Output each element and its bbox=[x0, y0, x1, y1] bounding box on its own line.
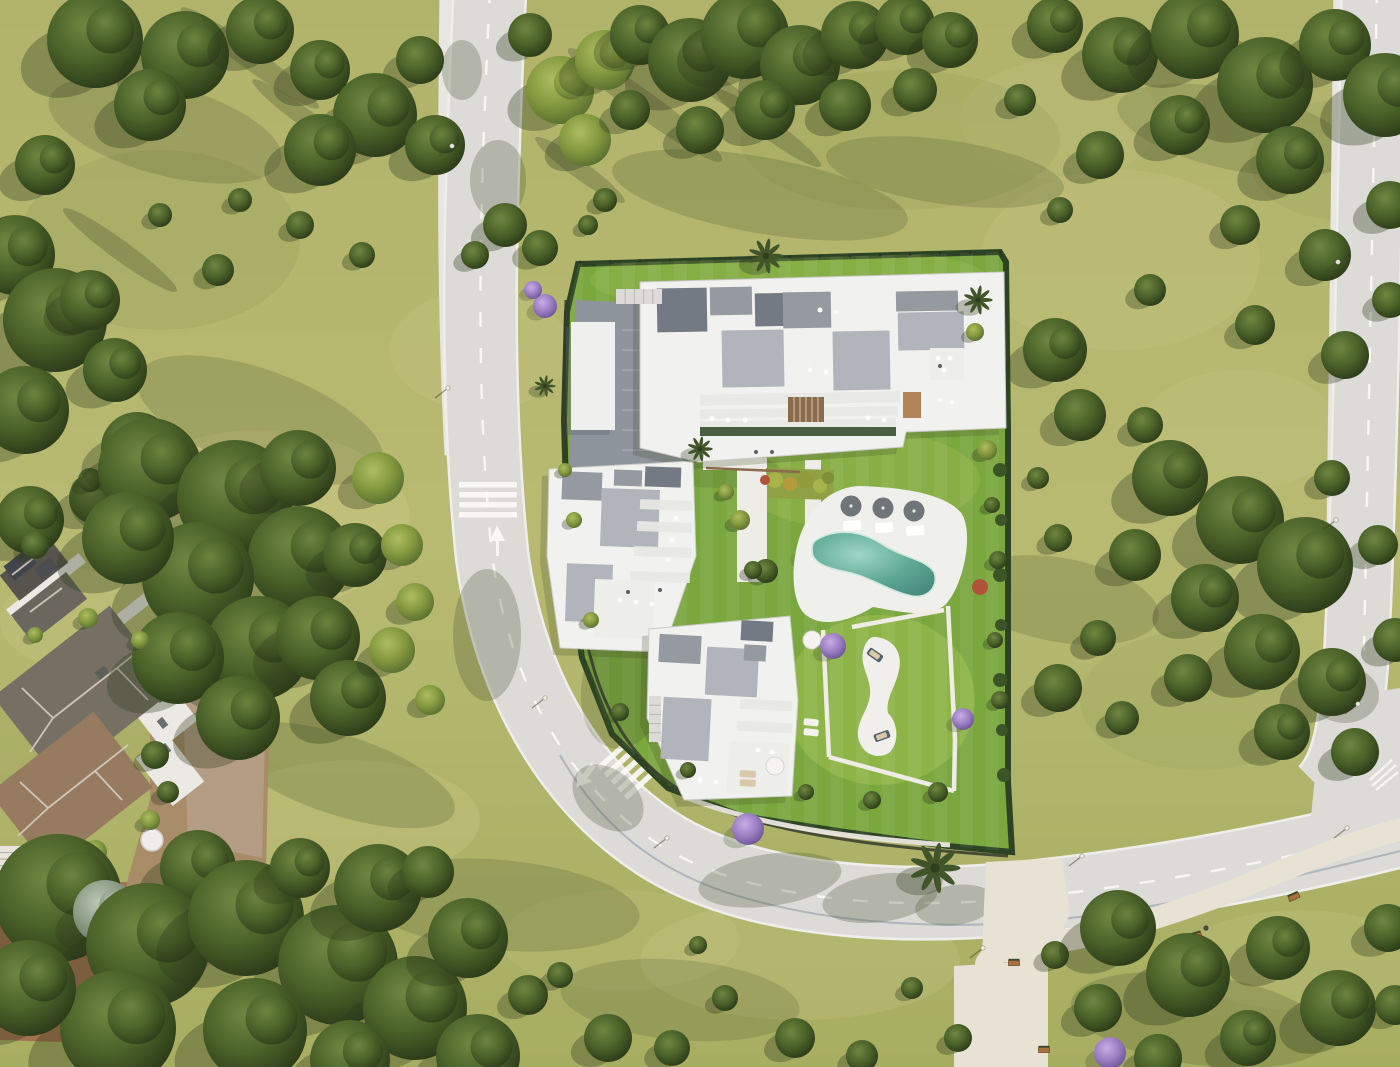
terrace-furniture bbox=[882, 418, 887, 423]
sunbed-pad bbox=[875, 522, 893, 533]
tree bbox=[1331, 728, 1379, 776]
tree bbox=[27, 627, 43, 643]
tree bbox=[1220, 205, 1260, 245]
tree bbox=[984, 497, 1000, 513]
tree-crown-lump bbox=[1255, 625, 1293, 663]
street-lamp bbox=[450, 144, 454, 148]
roof-panel bbox=[645, 466, 682, 487]
terrace-furniture bbox=[698, 778, 703, 783]
tree-crown-lump bbox=[1187, 3, 1231, 47]
roof-panel bbox=[600, 488, 660, 548]
tree bbox=[611, 703, 629, 721]
flowering-shrub-red bbox=[760, 475, 770, 485]
terrace-lounger bbox=[740, 779, 756, 787]
roof-panel bbox=[722, 329, 785, 387]
terrace-furniture-dark bbox=[626, 590, 630, 594]
terrace-furniture bbox=[942, 368, 947, 373]
tree bbox=[352, 452, 404, 504]
terrace-furniture-dark bbox=[754, 450, 758, 454]
tree-crown-lump bbox=[1175, 103, 1205, 133]
wood-deck bbox=[903, 392, 921, 418]
roof-panel bbox=[783, 292, 832, 329]
tree-crown-lump bbox=[1331, 981, 1369, 1019]
jacaranda-tree bbox=[952, 708, 974, 730]
tree bbox=[286, 211, 314, 239]
tree bbox=[680, 762, 696, 778]
tree-crown-lump bbox=[170, 625, 216, 671]
terrace-furniture bbox=[674, 516, 679, 521]
terrace-strip bbox=[640, 499, 692, 511]
fence-post bbox=[819, 255, 822, 258]
tree bbox=[584, 1014, 632, 1062]
fence-post bbox=[789, 256, 792, 259]
terrace-furniture bbox=[818, 308, 823, 313]
tree-crown-lump bbox=[1049, 327, 1081, 359]
shrub bbox=[797, 472, 813, 488]
street-lamp bbox=[1356, 702, 1360, 706]
tree bbox=[522, 230, 558, 266]
palm-crown bbox=[930, 863, 939, 872]
tree bbox=[1134, 274, 1166, 306]
tree bbox=[1034, 664, 1082, 712]
terrace-furniture bbox=[948, 356, 953, 361]
tree-crown-lump bbox=[254, 6, 288, 40]
tree bbox=[78, 608, 98, 628]
tree-crown-lump bbox=[1326, 658, 1360, 692]
street-lamp bbox=[1336, 260, 1340, 264]
tree bbox=[966, 323, 984, 341]
tree bbox=[676, 106, 724, 154]
tree bbox=[730, 510, 750, 530]
tree bbox=[654, 1030, 690, 1066]
tree-crown-lump bbox=[1163, 451, 1201, 489]
terrace-lounger bbox=[740, 770, 756, 778]
shrub bbox=[783, 477, 797, 491]
tree bbox=[1027, 467, 1049, 489]
terrace-strip bbox=[634, 546, 692, 558]
palm-crown bbox=[763, 253, 769, 259]
tree bbox=[977, 440, 997, 460]
aerial-site-render bbox=[0, 0, 1400, 1067]
tree bbox=[712, 985, 738, 1011]
terrace-strip bbox=[637, 521, 692, 533]
tree bbox=[1004, 84, 1036, 116]
tree bbox=[744, 561, 762, 579]
tree bbox=[1299, 229, 1351, 281]
tree-crown-lump bbox=[315, 48, 345, 78]
fence-post bbox=[609, 260, 612, 263]
roof-panel bbox=[660, 697, 711, 761]
tree-crown-lump bbox=[144, 79, 180, 115]
tree-crown-lump bbox=[470, 1026, 512, 1067]
tree bbox=[1080, 620, 1116, 656]
shrub bbox=[822, 472, 834, 484]
terrace-furniture bbox=[834, 310, 839, 315]
bench-seat bbox=[1039, 1048, 1050, 1053]
terrace-furniture bbox=[824, 370, 829, 375]
fence-post bbox=[699, 258, 702, 261]
garage-roof bbox=[571, 322, 615, 430]
aerial-render-canvas bbox=[0, 0, 1400, 1067]
tree bbox=[1044, 524, 1072, 552]
palm-crown bbox=[543, 384, 547, 388]
terrace-furniture-dark bbox=[938, 364, 942, 368]
sunbed-pad bbox=[843, 520, 861, 531]
boundary-hedge-bush bbox=[997, 768, 1011, 782]
umbrella-pole bbox=[912, 509, 915, 512]
palm-crown bbox=[698, 447, 703, 452]
tree bbox=[396, 36, 444, 84]
crosswalk-stripe bbox=[459, 482, 517, 488]
tree bbox=[1127, 407, 1163, 443]
roof-panel bbox=[896, 290, 958, 311]
tree bbox=[369, 627, 415, 673]
tree bbox=[989, 551, 1007, 569]
street-lamp bbox=[665, 836, 669, 840]
tree bbox=[819, 79, 871, 131]
terrace-furniture bbox=[770, 750, 775, 755]
crosswalk-stripe bbox=[459, 492, 517, 498]
tree-crown-lump bbox=[1180, 945, 1222, 987]
tree-crown-lump bbox=[85, 278, 115, 308]
tree-crown-lump bbox=[19, 953, 67, 1001]
boundary-hedge-bush bbox=[996, 724, 1008, 736]
tree bbox=[131, 631, 149, 649]
roof-panel bbox=[832, 331, 890, 391]
sunbed-pad bbox=[906, 525, 924, 536]
roof-panel bbox=[657, 288, 708, 333]
terrace-furniture bbox=[670, 538, 675, 543]
tree-crown-lump bbox=[230, 688, 272, 730]
tree bbox=[583, 612, 599, 628]
bench-back bbox=[1009, 959, 1020, 961]
fence-post bbox=[939, 252, 942, 255]
road-tree-shadow bbox=[442, 40, 482, 100]
tree bbox=[798, 784, 814, 800]
terrace-furniture bbox=[650, 602, 655, 607]
crosswalk-stripe bbox=[459, 502, 517, 508]
bench bbox=[1009, 959, 1020, 966]
tree bbox=[140, 810, 160, 830]
road-tree-shadow bbox=[453, 569, 521, 701]
umbrella-pole bbox=[881, 506, 884, 509]
tree-crown-lump bbox=[367, 85, 409, 127]
terrace-furniture bbox=[726, 418, 731, 423]
tree-crown-lump bbox=[430, 123, 460, 153]
roof-panel bbox=[614, 470, 643, 487]
tree-crown-lump bbox=[40, 143, 70, 173]
tree bbox=[141, 741, 169, 769]
fence-post bbox=[849, 254, 852, 257]
boundary-hedge-bush bbox=[993, 673, 1007, 687]
tree-crown-lump bbox=[760, 88, 790, 118]
fence-post bbox=[879, 253, 882, 256]
tree bbox=[566, 512, 582, 528]
terrace-furniture bbox=[634, 600, 639, 605]
flowering-shrub-red bbox=[972, 579, 988, 595]
hedgerow bbox=[700, 427, 896, 436]
tree-crown-lump bbox=[246, 993, 298, 1045]
tree bbox=[718, 484, 734, 500]
street-lamp bbox=[981, 946, 985, 950]
roof-panel bbox=[710, 287, 752, 316]
tree bbox=[1047, 197, 1073, 223]
tree bbox=[1054, 389, 1106, 441]
terrace-furniture-dark bbox=[770, 450, 774, 454]
tree-crown-lump bbox=[1243, 1018, 1271, 1046]
tree bbox=[558, 463, 572, 477]
tree bbox=[1076, 131, 1124, 179]
tree bbox=[901, 977, 923, 999]
fence-post bbox=[669, 258, 672, 261]
terrace-furniture-dark bbox=[658, 588, 662, 592]
jacaranda-tree bbox=[820, 633, 846, 659]
tree bbox=[1321, 331, 1369, 379]
tree-crown-lump bbox=[945, 20, 973, 48]
street-lamp bbox=[543, 696, 547, 700]
street-lamp bbox=[1080, 854, 1084, 858]
tree bbox=[148, 203, 172, 227]
terrace-parasol bbox=[766, 757, 784, 775]
terrace-furniture bbox=[666, 558, 671, 563]
gazebo bbox=[141, 829, 163, 851]
tree bbox=[987, 632, 1003, 648]
fence-post bbox=[639, 259, 642, 262]
tree bbox=[402, 846, 454, 898]
concrete-pad bbox=[954, 960, 1048, 1067]
fence-post bbox=[579, 261, 582, 264]
fence-post bbox=[999, 251, 1002, 254]
tree-crown-lump bbox=[86, 5, 134, 53]
tree-crown-lump bbox=[1232, 488, 1276, 532]
tree bbox=[775, 1018, 815, 1058]
tree bbox=[396, 583, 434, 621]
bench bbox=[1039, 1046, 1050, 1053]
fence-post bbox=[909, 253, 912, 256]
tree-crown-lump bbox=[1050, 5, 1078, 33]
tree-crown-lump bbox=[109, 347, 141, 379]
tree bbox=[593, 188, 617, 212]
street-lamp bbox=[446, 386, 450, 390]
trash-bin bbox=[1203, 925, 1208, 930]
tree bbox=[157, 781, 179, 803]
tree-crown-lump bbox=[188, 538, 244, 594]
tree bbox=[944, 1024, 972, 1052]
fence-post bbox=[969, 251, 972, 254]
terrace-furniture bbox=[743, 418, 748, 423]
tree-crown-lump bbox=[310, 608, 352, 650]
tree-crown-lump bbox=[1272, 925, 1304, 957]
stairs bbox=[649, 696, 661, 742]
roof-panel bbox=[898, 311, 965, 350]
bench-seat bbox=[1009, 961, 1020, 966]
tree-crown-lump bbox=[17, 378, 61, 422]
crosswalk-stripe bbox=[459, 512, 517, 518]
tree bbox=[21, 531, 49, 559]
tree-crown-lump bbox=[291, 441, 329, 479]
tree bbox=[1358, 525, 1398, 565]
tree-crown-lump bbox=[1296, 530, 1344, 578]
terrace-furniture bbox=[714, 780, 719, 785]
tree bbox=[1074, 984, 1122, 1032]
terrace-furniture bbox=[866, 416, 871, 421]
terrace-furniture bbox=[808, 368, 813, 373]
tree bbox=[415, 685, 445, 715]
tree bbox=[483, 203, 527, 247]
tree bbox=[349, 242, 375, 268]
tree bbox=[381, 524, 423, 566]
street-lamp bbox=[1334, 518, 1338, 522]
fence-post bbox=[729, 257, 732, 260]
tree bbox=[893, 68, 937, 112]
palm-crown bbox=[975, 297, 980, 302]
tree-crown-lump bbox=[461, 909, 501, 949]
terrace-furniture bbox=[756, 748, 761, 753]
tree-crown-lump bbox=[1329, 19, 1365, 55]
tree bbox=[1164, 654, 1212, 702]
tree bbox=[928, 782, 948, 802]
tree bbox=[1314, 460, 1350, 496]
boundary-hedge-bush bbox=[995, 514, 1007, 526]
tree-crown-lump bbox=[314, 124, 350, 160]
boundary-hedge-bush bbox=[993, 463, 1007, 477]
terrace-furniture bbox=[936, 356, 941, 361]
tree-crown-lump bbox=[295, 846, 325, 876]
tree bbox=[547, 962, 573, 988]
tree-crown-lump bbox=[1284, 136, 1318, 170]
tree bbox=[202, 254, 234, 286]
street-lamp bbox=[1345, 826, 1349, 830]
terrace-furniture bbox=[938, 398, 943, 403]
roof-terrace bbox=[593, 579, 655, 639]
umbrella-pole bbox=[849, 504, 852, 507]
stairs bbox=[616, 289, 662, 304]
roof-panel bbox=[744, 644, 767, 661]
tree bbox=[1235, 305, 1275, 345]
tree bbox=[228, 188, 252, 212]
tree bbox=[610, 90, 650, 130]
terrace-furniture bbox=[618, 598, 623, 603]
tree-crown-lump bbox=[1111, 901, 1149, 939]
tree-crown-lump bbox=[1199, 574, 1233, 608]
jacaranda-tree bbox=[732, 813, 764, 845]
tree-crown-lump bbox=[8, 226, 48, 266]
tree-crown-lump bbox=[1277, 712, 1305, 740]
jacaranda-tree bbox=[524, 281, 542, 299]
lawn-path bbox=[954, 740, 955, 791]
tree bbox=[689, 936, 707, 954]
roof-terrace bbox=[930, 348, 964, 380]
roof-panel bbox=[740, 620, 773, 642]
tree bbox=[1109, 529, 1161, 581]
terrace-furniture bbox=[950, 400, 955, 405]
tree-crown-lump bbox=[108, 986, 166, 1044]
roof-panel bbox=[658, 634, 701, 664]
boundary-hedge-bush bbox=[995, 619, 1007, 631]
tree bbox=[1105, 701, 1139, 735]
tree bbox=[508, 13, 552, 57]
bench-back bbox=[1039, 1046, 1050, 1048]
terrace-furniture bbox=[710, 416, 715, 421]
tree bbox=[991, 691, 1009, 709]
tree bbox=[461, 241, 489, 269]
tree-crown-lump bbox=[24, 496, 58, 530]
tree bbox=[863, 791, 881, 809]
tree-crown-lump bbox=[120, 505, 166, 551]
tree bbox=[578, 215, 598, 235]
